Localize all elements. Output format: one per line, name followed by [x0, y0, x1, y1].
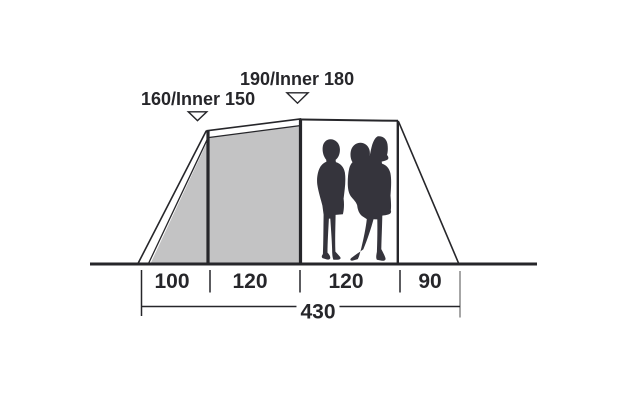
tent-mid-panel-fill: [209, 126, 301, 263]
width-segment-label-90: 90: [418, 271, 441, 292]
tent-left-panel-fill: [151, 138, 209, 263]
height-label-left: 160/Inner 150: [141, 90, 255, 108]
diagram-canvas: [0, 0, 640, 400]
parent-and-child-silhouette-icon: [348, 136, 391, 261]
family-silhouette-icon: [317, 136, 391, 261]
woman-silhouette-icon: [317, 139, 345, 259]
width-segment-label-120a: 120: [232, 271, 267, 292]
width-segment-label-120b: 120: [328, 271, 363, 292]
tent-dimension-diagram: 160/Inner 150 190/Inner 180 100 120 120 …: [0, 0, 640, 400]
tent-outline: [90, 119, 537, 264]
total-width-label: 430: [296, 302, 339, 323]
height-label-right: 190/Inner 180: [240, 70, 354, 88]
arrow-down-icon: [188, 112, 207, 121]
width-segment-label-100: 100: [154, 271, 189, 292]
tent-right-slope: [399, 122, 459, 264]
arrow-down-icon: [287, 93, 308, 103]
tent-top-line: [302, 120, 398, 121]
